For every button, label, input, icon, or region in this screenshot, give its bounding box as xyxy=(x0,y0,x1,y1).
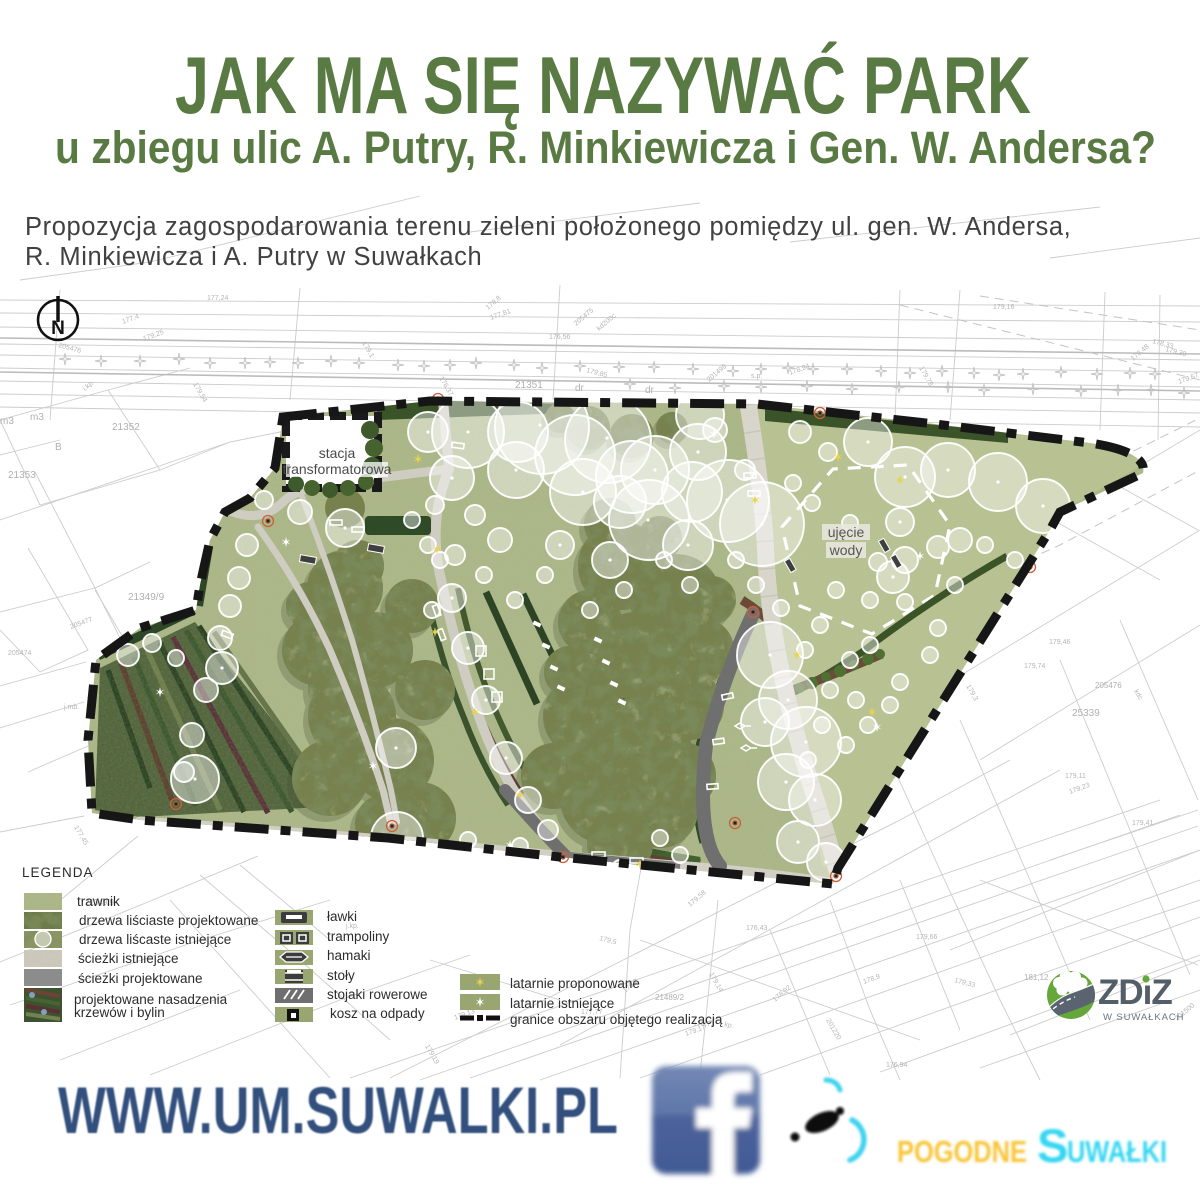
svg-text:ścieżki istniejące: ścieżki istniejące xyxy=(78,951,179,966)
svg-text:ławki: ławki xyxy=(327,909,357,924)
svg-text:transformatorowa: transformatorowa xyxy=(283,461,392,477)
svg-text:21489/2: 21489/2 xyxy=(655,993,684,1002)
svg-text:176,43: 176,43 xyxy=(746,925,768,932)
svg-text:179,11: 179,11 xyxy=(1065,773,1086,780)
svg-text:179,41: 179,41 xyxy=(1132,820,1154,827)
svg-text:25339: 25339 xyxy=(1072,708,1100,719)
svg-text:trawnik: trawnik xyxy=(77,894,120,909)
svg-text:m3: m3 xyxy=(0,416,14,427)
svg-text:21349/9: 21349/9 xyxy=(128,592,165,603)
svg-text:stojaki rowerowe: stojaki rowerowe xyxy=(327,987,428,1002)
svg-text:drzewa liściaste projektowane: drzewa liściaste projektowane xyxy=(79,913,258,928)
svg-text:21353: 21353 xyxy=(8,470,36,481)
svg-text:176,56: 176,56 xyxy=(549,334,571,341)
svg-text:kosz na odpady: kosz na odpady xyxy=(330,1006,425,1021)
svg-text:179,74: 179,74 xyxy=(1024,663,1046,670)
svg-text:m3: m3 xyxy=(30,412,44,423)
svg-text:s.p.: s.p. xyxy=(751,373,762,380)
svg-text:granice obszaru objętego reali: granice obszaru objętego realizacją xyxy=(510,1012,723,1027)
svg-text:181,12: 181,12 xyxy=(1024,973,1049,982)
svg-text:stacja: stacja xyxy=(319,445,356,461)
svg-text:205476: 205476 xyxy=(1095,681,1122,690)
svg-text:177,24: 177,24 xyxy=(207,295,229,302)
svg-text:LEGENDA: LEGENDA xyxy=(22,865,94,880)
svg-text:179,66: 179,66 xyxy=(916,934,938,941)
svg-text:21351: 21351 xyxy=(515,380,543,391)
svg-text:176,94: 176,94 xyxy=(886,1062,908,1069)
svg-text:205474: 205474 xyxy=(8,650,31,657)
svg-text:dr: dr xyxy=(575,383,585,394)
svg-text:W SUWAŁKACH: W SUWAŁKACH xyxy=(1103,1012,1184,1023)
svg-text:drzewa liścaste istniejące: drzewa liścaste istniejące xyxy=(79,932,231,947)
svg-text:wody: wody xyxy=(829,542,863,558)
svg-text:krzewów i bylin: krzewów i bylin xyxy=(74,1005,165,1020)
svg-text:ścieżki projektowane: ścieżki projektowane xyxy=(78,971,203,986)
svg-text:ujęcie: ujęcie xyxy=(828,524,865,540)
svg-text:dr: dr xyxy=(645,385,655,396)
svg-text:ZDıZ: ZDıZ xyxy=(1098,973,1172,1012)
svg-text:B: B xyxy=(55,442,62,453)
svg-text:latarnie proponowane: latarnie proponowane xyxy=(510,976,640,991)
svg-text:trampoliny: trampoliny xyxy=(327,929,390,944)
svg-text:179,46: 179,46 xyxy=(1049,639,1071,646)
svg-text:stoły: stoły xyxy=(327,968,355,983)
svg-text:latarnie istniejące: latarnie istniejące xyxy=(510,996,614,1011)
svg-text:j.mb.: j.mb. xyxy=(63,704,79,711)
svg-text:179,16: 179,16 xyxy=(993,304,1015,311)
svg-text:21352: 21352 xyxy=(112,422,140,433)
svg-text:hamaki: hamaki xyxy=(327,948,371,963)
svg-text:N: N xyxy=(51,318,65,339)
